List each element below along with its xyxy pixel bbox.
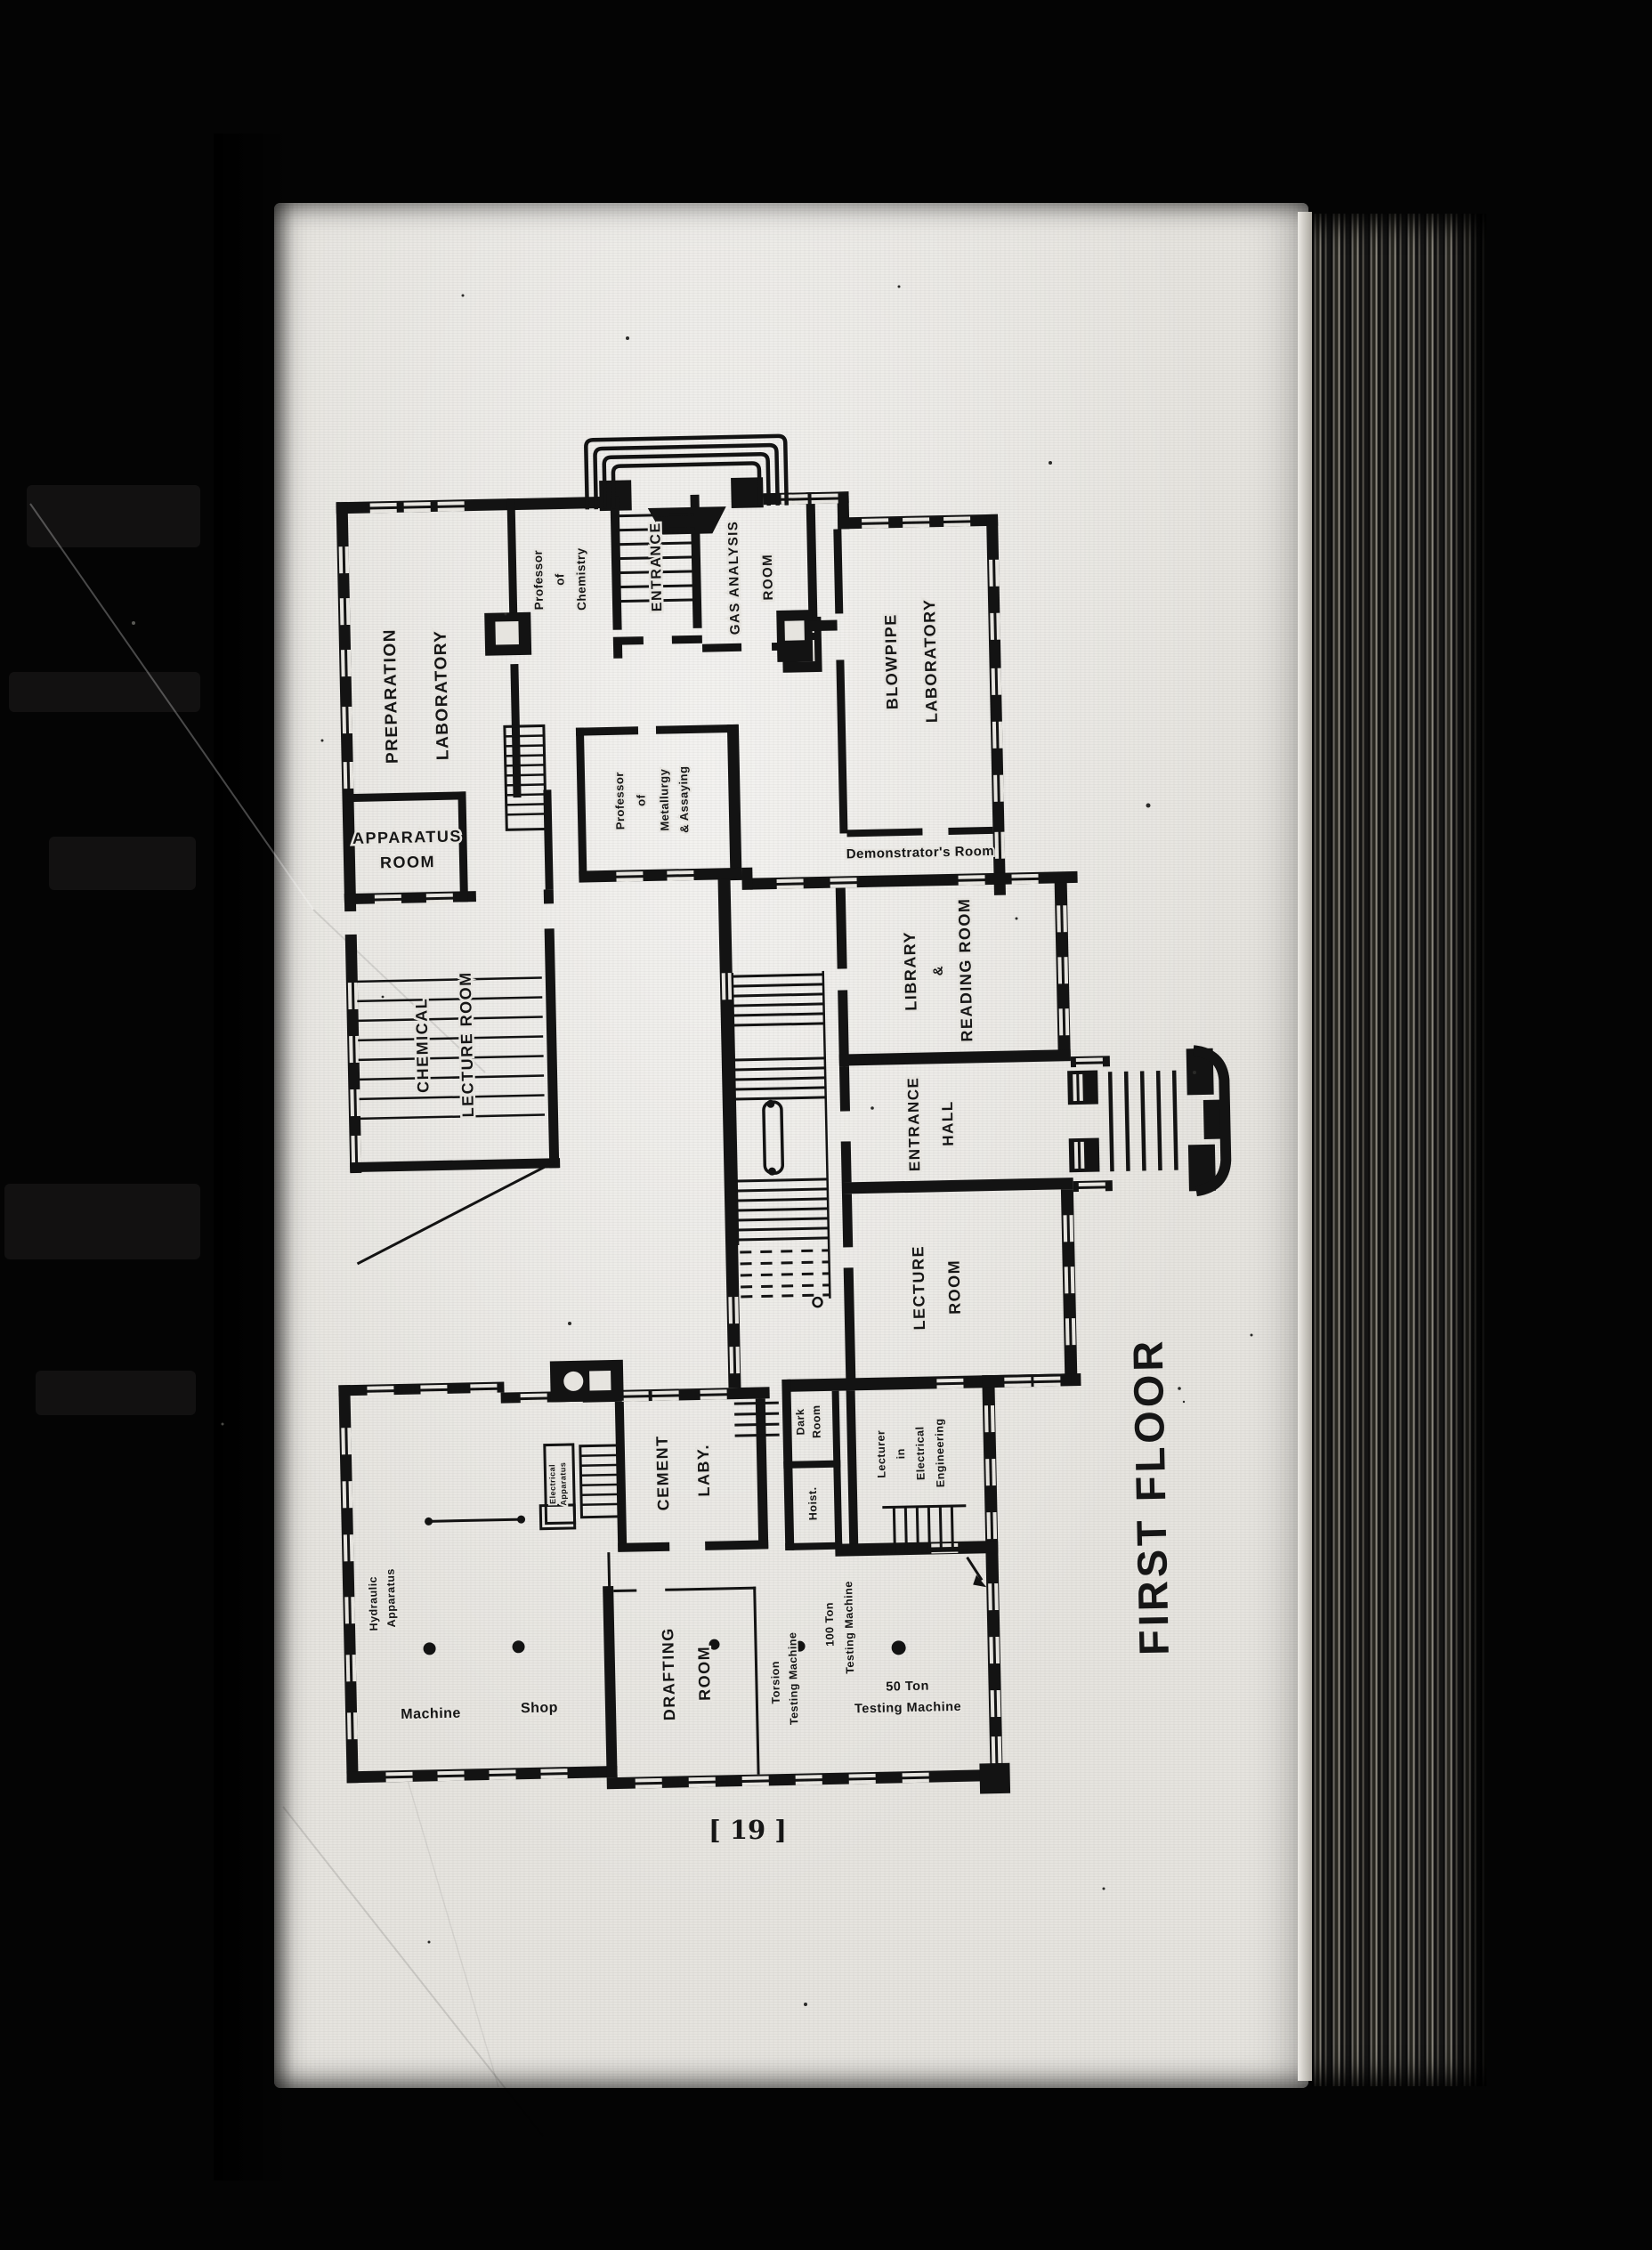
- label-dark-room-line1: Dark: [794, 1409, 807, 1436]
- chemistry-fixture: [484, 612, 531, 656]
- label-chemical-lecture-room-line1: CHEMICAL: [412, 998, 432, 1093]
- cement-stair: [580, 1445, 621, 1518]
- label-professor-of-metallurgy-line1: Professor: [612, 772, 627, 830]
- label-100-ton-line2: Testing Machine: [842, 1581, 856, 1674]
- label-blowpipe-laboratory-line2: LABORATORY: [920, 598, 941, 723]
- label-lecture-room-line1: LECTURE: [909, 1245, 928, 1331]
- scanned-book-page: PREPARATION LABORATORY APPARATUS ROOM Pr…: [0, 0, 1652, 2250]
- label-hydraulic-apparatus-line2: Apparatus: [385, 1568, 398, 1628]
- plan-title: FIRST FLOOR: [1123, 1337, 1177, 1655]
- label-drafting-room-line1: DRAFTING: [659, 1627, 678, 1720]
- label-drafting-room-line2: ROOM: [695, 1646, 714, 1701]
- label-electrical-apparatus-line2: Apparatus: [558, 1462, 568, 1506]
- label-preparation-laboratory-line1: PREPARATION: [381, 628, 402, 764]
- label-torsion-testing-line2: Testing Machine: [786, 1631, 800, 1725]
- label-hoist: Hoist.: [806, 1486, 820, 1520]
- floor-plan-svg: PREPARATION LABORATORY APPARATUS ROOM Pr…: [0, 0, 1652, 2250]
- label-hydraulic-apparatus-line1: Hydraulic: [367, 1576, 380, 1631]
- label-professor-of-metallurgy-line3: Metallurgy: [657, 768, 671, 831]
- label-library-line1: LIBRARY: [901, 931, 920, 1011]
- page-number: [ 19 ]: [709, 1815, 787, 1845]
- label-torsion-testing-line1: Torsion: [769, 1661, 782, 1704]
- label-lecturer-line2: in: [895, 1448, 907, 1459]
- label-entrance-hall-line1: ENTRANCE: [904, 1076, 923, 1171]
- label-professor-of-chemistry-line2: of: [553, 573, 566, 586]
- label-apparatus-room-line2: ROOM: [380, 853, 435, 871]
- label-50-ton-line1: 50 Ton: [886, 1679, 929, 1695]
- ghost-image: [4, 485, 200, 1415]
- label-lecturer-line1: Lecturer: [875, 1430, 888, 1478]
- label-entrance-hall-line2: HALL: [939, 1100, 957, 1146]
- label-electrical-apparatus-line1: Electrical: [547, 1464, 557, 1504]
- label-preparation-laboratory-line2: LABORATORY: [432, 629, 453, 760]
- grand-staircase: [733, 971, 830, 1308]
- back-stair: [505, 725, 546, 830]
- label-library-line3: READING ROOM: [955, 897, 976, 1041]
- label-cement-laboratory-line2: LABY.: [694, 1444, 713, 1497]
- label-chemical-lecture-room-line2: LECTURE ROOM: [457, 971, 477, 1117]
- floor-plan: PREPARATION LABORATORY APPARATUS ROOM Pr…: [319, 427, 1239, 1808]
- label-gas-analysis-line2: ROOM: [760, 554, 776, 601]
- label-50-ton-line2: Testing Machine: [854, 1700, 961, 1717]
- scratches: [30, 504, 543, 2136]
- label-lecturer-line3: Electrical: [913, 1426, 927, 1480]
- label-professor-of-metallurgy-line4: & Assaying: [676, 765, 692, 833]
- walls: [320, 468, 1237, 1808]
- label-apparatus-room-line1: APPARATUS: [352, 827, 462, 847]
- label-lecture-room-line2: ROOM: [945, 1259, 964, 1315]
- label-professor-of-metallurgy-line2: of: [634, 794, 647, 806]
- label-dark-room-line2: Room: [810, 1404, 823, 1438]
- label-demonstrators-room: Demonstrator's Room: [846, 844, 995, 862]
- label-100-ton-line1: 100 Ton: [823, 1602, 837, 1647]
- label-entrance-stair: ENTRANCE: [648, 522, 665, 611]
- label-cement-laboratory-line1: CEMENT: [653, 1435, 673, 1510]
- furnace-fixture: [550, 1360, 624, 1403]
- label-blowpipe-laboratory-line1: BLOWPIPE: [881, 613, 901, 709]
- label-professor-of-chemistry-line3: Chemistry: [574, 547, 588, 611]
- label-library-line2: &: [931, 965, 946, 976]
- label-gas-analysis-line1: GAS ANALYSIS: [725, 520, 743, 635]
- bench-rows: [352, 977, 563, 1523]
- label-lecturer-line4: Engineering: [933, 1418, 947, 1487]
- label-professor-of-chemistry-line1: Professor: [531, 549, 546, 610]
- stairs: [500, 504, 1235, 1597]
- blowpipe-fixture: [776, 610, 838, 662]
- label-machine-shop-line2: Shop: [521, 1700, 558, 1716]
- label-machine-shop-line1: Machine: [401, 1706, 461, 1722]
